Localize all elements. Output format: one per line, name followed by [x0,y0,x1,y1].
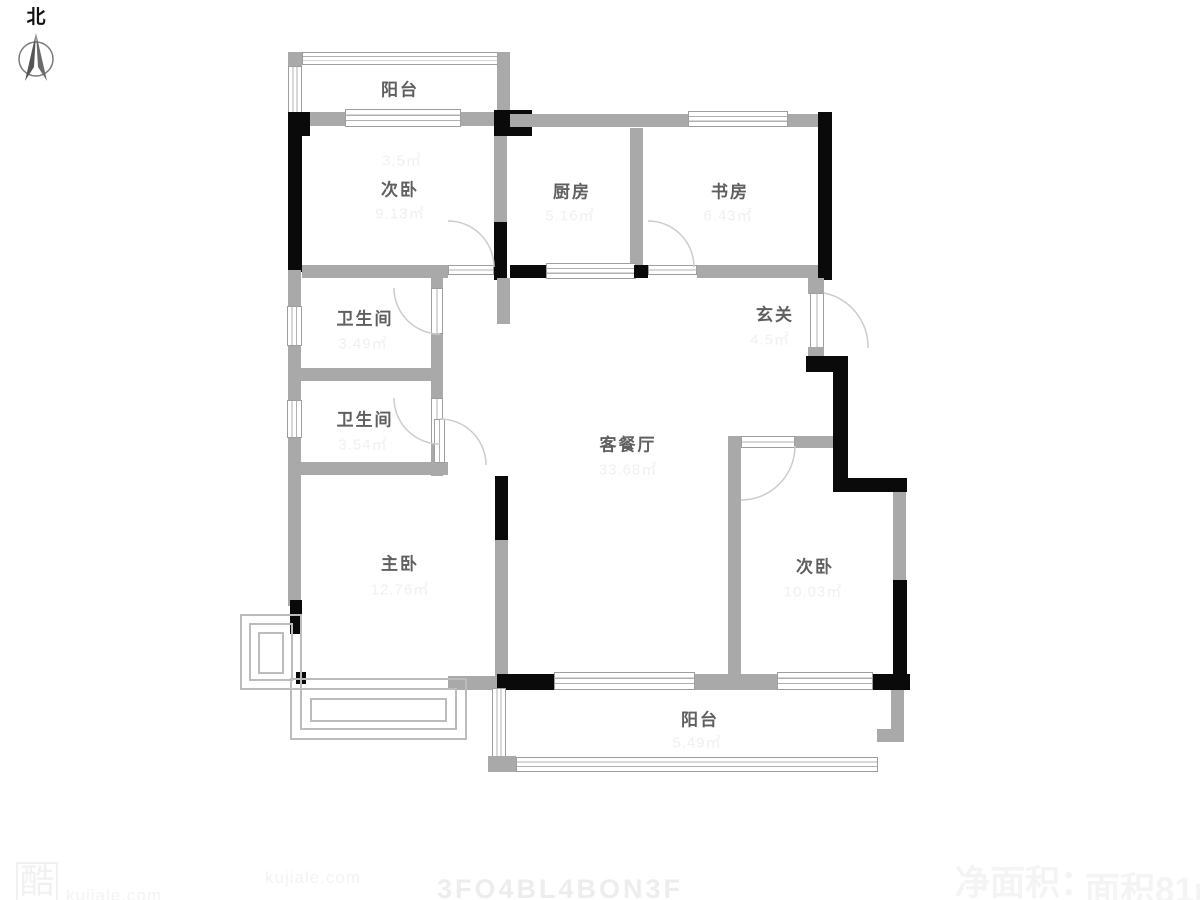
room-area-entry: 4.5㎡ [750,329,790,350]
wall-segment [488,756,516,772]
compass: 北 [6,2,66,96]
wall-segment [302,265,448,278]
wall-segment [300,368,433,381]
room-label-kitchen: 厨房 [553,178,591,203]
compass-north-label: 北 [6,2,66,29]
wall-segment [893,492,906,582]
door-leaf [741,436,795,448]
wall-segment [634,265,648,278]
room-area-master: 12.76㎡ [371,579,430,600]
entry-door-leaf [810,293,824,348]
window [287,400,302,438]
door-arc [741,446,795,500]
door-leaf [434,419,445,463]
room-area-bath2: 3.54㎡ [338,434,387,455]
room-label-bedroom-top: 次卧 [381,176,419,201]
room-area-balcony-top: 3.5㎡ [382,150,422,171]
watermark-net-area: 净面积： [955,855,1095,900]
room-label-bath1: 卫生间 [337,305,394,330]
room-area-bath1: 3.49㎡ [338,333,387,354]
watermark-net-area-value: 面积81m² [1085,862,1200,900]
sliding-window [345,109,461,127]
wall-segment [795,436,833,448]
wall-segment [494,222,507,280]
north-arrow-icon [6,29,66,91]
window [287,306,302,346]
room-label-balcony-bottom: 阳台 [681,706,719,731]
wall-segment [728,436,741,448]
room-area-bedroom-br: 10.03㎡ [784,581,843,602]
window [302,52,498,65]
window [688,111,788,127]
door-leaf [448,265,494,275]
wall-segment [494,136,507,224]
room-label-bath2: 卫生间 [337,406,394,431]
wall-segment [495,476,508,540]
wall-segment [891,690,904,732]
wall-segment [288,112,302,272]
wall-segment [495,540,508,678]
room-area-balcony-bottom: 5.49㎡ [672,732,721,753]
wall-segment [877,729,904,742]
wall-segment [833,478,907,492]
room-label-study: 书房 [711,178,749,203]
sliding-window [777,672,873,690]
bay-window [258,632,284,674]
room-label-bedroom-br: 次卧 [796,553,834,578]
wall-segment [510,265,548,278]
wall-segment [741,674,777,690]
wall-segment [630,128,643,267]
room-area-bedroom-top: 9.13㎡ [375,203,424,224]
entry-door-arc [824,293,868,348]
watermark-site: kujiale.com [66,886,162,900]
room-label-balcony-top: 阳台 [381,76,419,101]
door-arc [648,221,694,267]
wall-segment [300,462,448,475]
wall-segment [497,52,510,114]
wall-segment [833,356,848,492]
wall-segment [697,265,818,278]
watermark-code: 3FO4BL4BON3F [437,874,683,900]
wall-segment [808,278,824,294]
watermark-logo: 酷 [16,862,58,900]
wall-segment [497,278,510,324]
door-leaf [431,288,443,334]
room-label-master: 主卧 [381,550,419,575]
bay-window [310,698,447,722]
door-arc [440,419,486,465]
room-area-kitchen: 5.16㎡ [545,205,594,226]
window [492,688,506,760]
door-leaf [648,265,697,275]
watermark-site: kujiale.com [265,868,361,888]
door-arc [448,221,494,267]
window [288,66,302,116]
wall-segment [873,674,910,690]
balcony-railing [516,757,878,772]
room-label-living: 客餐厅 [600,431,657,456]
sliding-door [546,263,636,279]
wall-segment [728,448,741,690]
room-area-living: 33.68㎡ [599,459,658,480]
room-area-study: 6.43㎡ [703,205,752,226]
sliding-window [554,672,695,690]
wall-segment [818,112,832,280]
wall-segment [695,674,741,690]
room-label-entry: 玄关 [756,301,794,326]
floor-plan: 北 [0,0,1200,900]
